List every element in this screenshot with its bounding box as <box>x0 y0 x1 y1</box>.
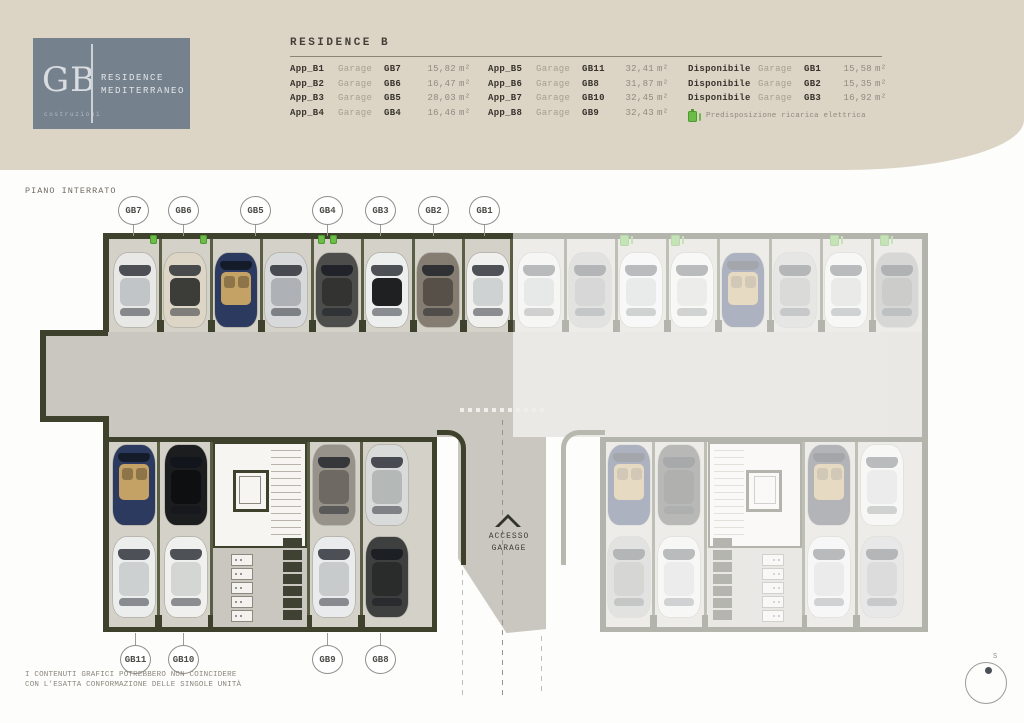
stair-step <box>714 492 744 493</box>
car-windshield <box>881 265 913 276</box>
car-windshield <box>321 265 353 276</box>
car-roof <box>423 278 453 306</box>
car-top-view <box>313 537 355 617</box>
storage-unit <box>762 582 784 594</box>
car-roof <box>575 278 605 306</box>
car-rear-glass <box>322 308 352 316</box>
car-top-view <box>164 253 206 327</box>
storage-dot <box>235 559 237 561</box>
garage-label-circle: GB8 <box>365 645 396 674</box>
stair-step <box>271 534 301 535</box>
storage-unit <box>713 574 732 584</box>
car-roof <box>677 278 707 306</box>
wall <box>103 627 437 632</box>
elevator <box>746 470 782 512</box>
block-bottom-left <box>103 437 437 632</box>
storage-dot <box>235 587 237 589</box>
stair-step <box>271 492 301 493</box>
car-roof <box>120 278 150 306</box>
car-rear-glass <box>372 506 402 514</box>
car-top-view <box>113 445 155 525</box>
car-windshield <box>574 265 606 276</box>
ramp-edge-dashed <box>541 636 542 696</box>
car-windshield <box>625 265 657 276</box>
wall <box>103 233 513 239</box>
storage-unit <box>713 610 732 620</box>
storage-unit <box>713 538 732 548</box>
wall <box>40 416 108 422</box>
storage-unit <box>231 568 253 580</box>
car-roof <box>372 470 402 504</box>
car-seat <box>631 468 642 480</box>
stair-step <box>714 527 744 528</box>
car-windshield <box>866 457 898 468</box>
car-rear-glass <box>473 308 503 316</box>
storage-unit <box>283 610 302 620</box>
ev-plug-icon <box>891 236 893 244</box>
stall-divider-foot <box>208 320 215 332</box>
stall-divider-foot <box>818 320 825 332</box>
storage-unit <box>231 610 253 622</box>
storage-dot <box>240 573 242 575</box>
car-windshield <box>371 265 403 276</box>
stair-step <box>271 457 301 458</box>
car-windshield <box>613 549 645 560</box>
stall-divider-foot <box>853 615 860 627</box>
storage-unit <box>231 596 253 608</box>
car-seat <box>224 276 235 288</box>
car-windshield <box>813 549 845 560</box>
car-top-view <box>608 445 650 525</box>
car-rear-glass <box>882 308 912 316</box>
elevator-inner <box>239 476 261 504</box>
car-windshield <box>118 453 150 462</box>
car-rear-glass <box>664 506 694 514</box>
car-rear-glass <box>171 506 201 514</box>
car-top-view <box>569 253 611 327</box>
stall-divider-foot <box>358 615 365 627</box>
stall-divider <box>412 239 415 332</box>
car-top-view <box>722 253 764 327</box>
garage-label-circle: GB6 <box>168 196 199 225</box>
storage-dot <box>778 615 780 617</box>
car-top-view <box>165 537 207 617</box>
stall-divider <box>820 239 823 332</box>
car-windshield <box>813 453 845 462</box>
car-roof <box>814 562 844 596</box>
stall-divider <box>307 442 310 627</box>
car-top-view <box>113 537 155 617</box>
car-roof <box>867 470 897 504</box>
car-top-view <box>165 445 207 525</box>
stall-divider <box>210 239 213 332</box>
car-roof <box>664 562 694 596</box>
car-roof <box>473 278 503 306</box>
stair-step <box>714 513 744 514</box>
car-windshield <box>663 457 695 468</box>
storage-unit <box>231 582 253 594</box>
garage-label-circle: GB9 <box>312 645 343 674</box>
stair-step <box>714 485 744 486</box>
stall-divider-foot <box>650 615 657 627</box>
car-top-view <box>114 253 156 327</box>
car-roof <box>171 562 201 596</box>
ev-plug-icon <box>631 236 633 244</box>
car-windshield <box>523 265 555 276</box>
car-windshield <box>270 265 302 276</box>
car-windshield <box>318 457 350 468</box>
car-rear-glass <box>372 308 402 316</box>
garage-label-circle: GB10 <box>168 645 199 674</box>
storage-dot <box>240 615 242 617</box>
car-rear-glass <box>119 598 149 606</box>
stall-divider-foot <box>664 320 671 332</box>
disclaimer-line1: I CONTENUTI GRAFICI POTREBBERO NON COINC… <box>25 671 241 681</box>
storage-dot <box>240 587 242 589</box>
car-top-view <box>620 253 662 327</box>
ev-charging-icon <box>200 235 207 244</box>
stall-divider <box>769 239 772 332</box>
ev-charging-icon <box>330 235 337 244</box>
car-top-view <box>313 445 355 525</box>
garage-label-circle: GB11 <box>120 645 151 674</box>
floor-plan: GB7GB6GB5GB4GB3GB2GB1GB11GB10GB9GB8 <box>0 0 1024 723</box>
ramp-wall-left <box>437 430 466 565</box>
car-windshield <box>676 265 708 276</box>
ev-charging-icon <box>880 235 889 246</box>
car-windshield <box>866 549 898 560</box>
car-rear-glass <box>780 308 810 316</box>
car-top-view <box>671 253 713 327</box>
ev-plug-icon <box>841 236 843 244</box>
stall-divider <box>802 442 805 627</box>
stall-divider <box>704 442 707 627</box>
car-roof <box>271 278 301 306</box>
car-roof <box>319 562 349 596</box>
stair-step <box>714 506 744 507</box>
car-rear-glass <box>171 598 201 606</box>
car-seat <box>745 276 756 288</box>
car-top-view <box>658 445 700 525</box>
stall-divider <box>717 239 720 332</box>
car-roof <box>614 562 644 596</box>
garage-label-circle: GB2 <box>418 196 449 225</box>
storage-dot <box>773 601 775 603</box>
wall <box>600 437 606 632</box>
stair-step <box>271 478 301 479</box>
ramp-label: ACCESSO GARAGE <box>468 531 550 555</box>
car-roof <box>882 278 912 306</box>
car-roof <box>322 278 352 306</box>
storage-dot <box>240 601 242 603</box>
stall-divider <box>855 442 858 627</box>
storage-dot <box>240 559 242 561</box>
car-seat <box>122 468 133 480</box>
driveway-faded <box>513 332 928 437</box>
car-top-view <box>467 253 509 327</box>
car-windshield <box>318 549 350 560</box>
stall-divider <box>615 239 618 332</box>
storage-unit <box>283 598 302 608</box>
car-windshield <box>118 549 150 560</box>
ramp-arrow-icon <box>495 514 521 527</box>
stair-step <box>714 464 744 465</box>
disclaimer: I CONTENUTI GRAFICI POTREBBERO NON COINC… <box>25 671 241 690</box>
stall-divider <box>159 239 162 332</box>
storage-dot <box>773 615 775 617</box>
stall-divider-foot <box>715 320 722 332</box>
ramp-threshold <box>460 408 544 412</box>
car-windshield <box>371 457 403 468</box>
car-roof <box>626 278 656 306</box>
car-seat <box>817 468 828 480</box>
garage-label-circle: GB3 <box>365 196 396 225</box>
stall-divider-foot <box>258 320 265 332</box>
storage-dot <box>778 601 780 603</box>
stall-divider <box>564 239 567 332</box>
stair-step <box>714 478 744 479</box>
disclaimer-line2: CON L'ESATTA CONFORMAZIONE DELLE SINGOLE… <box>25 681 241 691</box>
driveway-notch <box>45 335 108 417</box>
car-top-view <box>861 445 903 525</box>
car-seat <box>731 276 742 288</box>
wall <box>922 233 928 332</box>
ev-charging-icon <box>150 235 157 244</box>
ev-charging-icon <box>620 235 629 246</box>
stair-step <box>271 527 301 528</box>
storage-dot <box>778 559 780 561</box>
wall <box>922 437 928 632</box>
ev-charging-icon <box>830 235 839 246</box>
driveway <box>103 332 513 437</box>
stall-divider-foot <box>155 615 162 627</box>
stall-divider-foot <box>309 320 316 332</box>
stair-step <box>714 450 744 451</box>
stair-step <box>714 499 744 500</box>
stall-divider-foot <box>359 320 366 332</box>
storage-unit <box>713 586 732 596</box>
car-roof <box>664 470 694 504</box>
garage-label-circle: GB4 <box>312 196 343 225</box>
storage-unit <box>713 598 732 608</box>
car-roof <box>831 278 861 306</box>
storage-dot <box>773 573 775 575</box>
car-top-view <box>658 537 700 617</box>
car-windshield <box>830 265 862 276</box>
car-roof <box>867 562 897 596</box>
storage-unit <box>762 568 784 580</box>
ev-charging-icon <box>318 235 325 244</box>
car-rear-glass <box>372 598 402 606</box>
compass-dot-icon <box>985 667 992 674</box>
stairwell <box>708 442 802 627</box>
car-windshield <box>119 265 151 276</box>
car-top-view <box>825 253 867 327</box>
storage-unit <box>283 538 302 548</box>
car-top-view <box>608 537 650 617</box>
car-windshield <box>170 549 202 560</box>
stall-divider <box>462 239 465 332</box>
car-roof <box>170 278 200 306</box>
car-top-view <box>518 253 560 327</box>
ev-plug-icon <box>682 236 684 244</box>
car-top-view <box>876 253 918 327</box>
wall <box>40 330 46 422</box>
stall-divider <box>652 442 655 627</box>
storage-unit <box>283 574 302 584</box>
car-seat <box>831 468 842 480</box>
car-windshield <box>613 453 645 462</box>
car-top-view <box>808 445 850 525</box>
wall <box>432 437 437 632</box>
garage-label-circle: GB5 <box>240 196 271 225</box>
driveway-floor <box>513 332 922 437</box>
wall <box>103 233 109 332</box>
storage-dot <box>235 573 237 575</box>
car-windshield <box>220 261 252 270</box>
car-roof <box>780 278 810 306</box>
stair-step <box>271 520 301 521</box>
car-roof <box>319 470 349 504</box>
car-roof <box>372 562 402 596</box>
car-seat <box>617 468 628 480</box>
stall-divider-foot <box>767 320 774 332</box>
car-top-view <box>265 253 307 327</box>
wall <box>513 233 928 239</box>
car-roof <box>524 278 554 306</box>
car-rear-glass <box>614 598 644 606</box>
car-roof <box>372 278 402 306</box>
car-top-view <box>774 253 816 327</box>
storage-unit <box>762 596 784 608</box>
stall-divider <box>871 239 874 332</box>
car-roof <box>119 562 149 596</box>
car-top-view <box>215 253 257 327</box>
car-rear-glass <box>319 598 349 606</box>
storage-dot <box>235 601 237 603</box>
storage-unit <box>283 586 302 596</box>
car-top-view <box>861 537 903 617</box>
stair-step <box>271 506 301 507</box>
storage-unit <box>762 610 784 622</box>
stall-divider <box>666 239 669 332</box>
storage-unit <box>713 562 732 572</box>
stall-divider <box>361 239 364 332</box>
stair-step <box>714 471 744 472</box>
stair-step <box>271 499 301 500</box>
stall-divider <box>360 442 363 627</box>
car-rear-glass <box>867 506 897 514</box>
stall-divider-foot <box>410 320 417 332</box>
storage-dot <box>778 573 780 575</box>
stair-step <box>714 457 744 458</box>
car-windshield <box>169 265 201 276</box>
car-seat <box>238 276 249 288</box>
car-rear-glass <box>575 308 605 316</box>
wall <box>103 437 109 632</box>
ramp-wall-right-faded <box>561 430 605 565</box>
parking-row-top-faded <box>513 233 928 332</box>
car-top-view <box>366 537 408 617</box>
wall <box>103 416 109 437</box>
stair-step <box>714 520 744 521</box>
ramp-label-line1: ACCESSO <box>468 531 550 543</box>
storage-dot <box>773 587 775 589</box>
stair-step <box>271 513 301 514</box>
storage-dot <box>773 559 775 561</box>
block-bottom-right-faded <box>600 437 928 632</box>
parking-row-top <box>103 233 513 332</box>
stair-step <box>271 450 301 451</box>
ev-charging-icon <box>671 235 680 246</box>
stall-divider-foot <box>562 320 569 332</box>
compass-direction-label: S <box>993 653 997 661</box>
storage-unit <box>762 554 784 566</box>
car-rear-glass <box>170 308 200 316</box>
car-windshield <box>170 457 202 468</box>
wall <box>922 332 928 437</box>
ramp-label-line2: GARAGE <box>468 543 550 555</box>
car-rear-glass <box>120 308 150 316</box>
stall-divider <box>311 239 314 332</box>
storage-unit <box>231 554 253 566</box>
car-top-view <box>316 253 358 327</box>
stair-step <box>271 485 301 486</box>
stall-divider-foot <box>613 320 620 332</box>
wall <box>40 330 108 336</box>
car-rear-glass <box>814 598 844 606</box>
car-rear-glass <box>831 308 861 316</box>
car-rear-glass <box>271 308 301 316</box>
car-rear-glass <box>664 598 694 606</box>
storage-dot <box>778 587 780 589</box>
car-rear-glass <box>626 308 656 316</box>
stall-divider-foot <box>869 320 876 332</box>
elevator-inner <box>754 476 776 504</box>
stall-divider-foot <box>157 320 164 332</box>
car-top-view <box>417 253 459 327</box>
stair-step <box>271 471 301 472</box>
stall-divider-foot <box>460 320 467 332</box>
stall-divider <box>260 239 263 332</box>
car-rear-glass <box>423 308 453 316</box>
ramp-edge-dashed <box>462 570 463 695</box>
car-rear-glass <box>319 506 349 514</box>
car-top-view <box>808 537 850 617</box>
garage-label-circle: GB1 <box>469 196 500 225</box>
stair-step <box>714 534 744 535</box>
storage-unit <box>713 550 732 560</box>
car-windshield <box>472 265 504 276</box>
stair-step <box>271 464 301 465</box>
stairwell <box>213 442 307 627</box>
car-windshield <box>663 549 695 560</box>
car-top-view <box>366 445 408 525</box>
elevator <box>233 470 269 512</box>
wall <box>600 627 928 632</box>
car-windshield <box>371 549 403 560</box>
storage-unit <box>283 562 302 572</box>
stall-divider <box>157 442 160 627</box>
ramp-centerline <box>502 420 503 695</box>
car-rear-glass <box>867 598 897 606</box>
car-windshield <box>422 265 454 276</box>
car-roof <box>171 470 201 504</box>
car-seat <box>136 468 147 480</box>
garage-label-circle: GB7 <box>118 196 149 225</box>
car-rear-glass <box>524 308 554 316</box>
car-rear-glass <box>677 308 707 316</box>
